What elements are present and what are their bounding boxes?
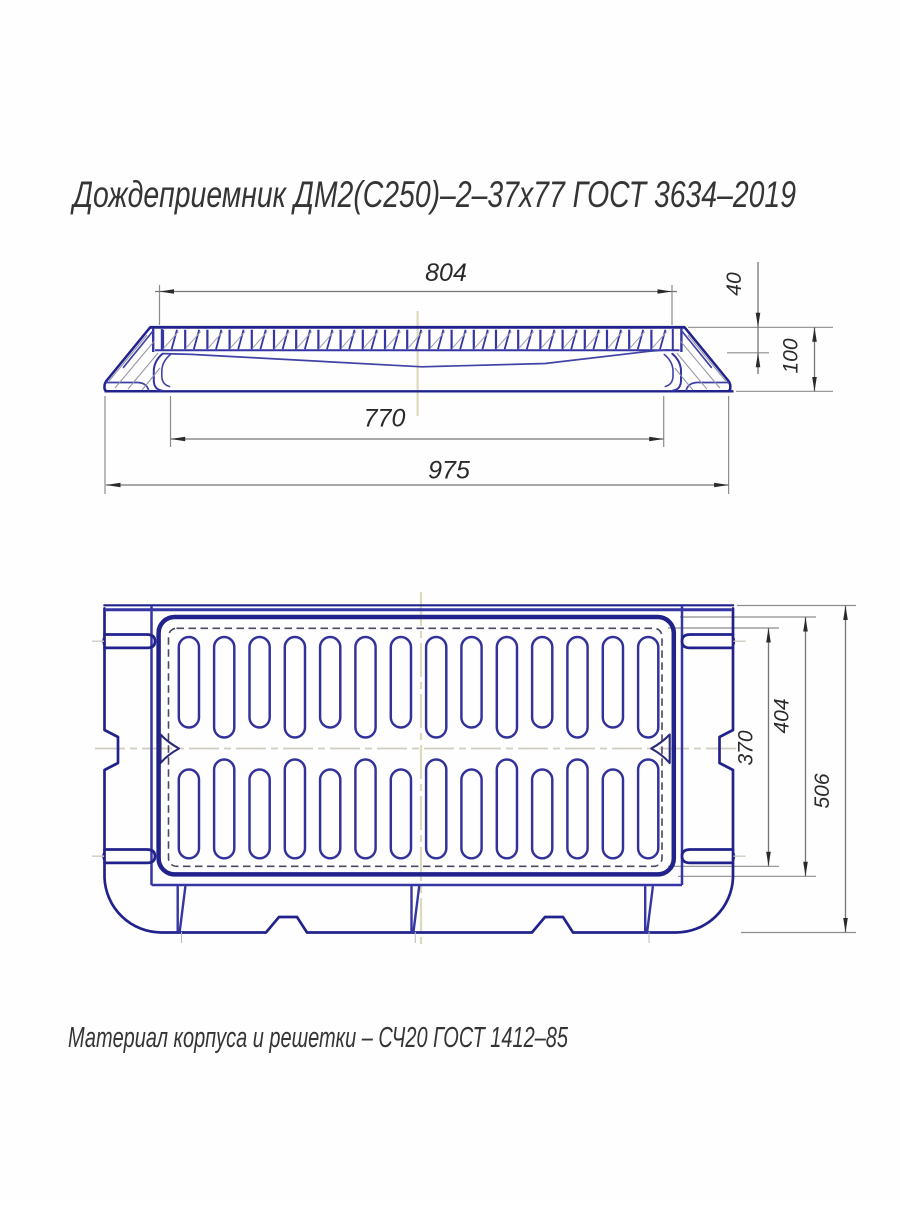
svg-text:370: 370 — [735, 730, 758, 765]
svg-text:Дождеприемник ДМ2(С250)–2–37х7: Дождеприемник ДМ2(С250)–2–37х77 ГОСТ 363… — [70, 174, 796, 215]
svg-text:100: 100 — [780, 338, 803, 373]
svg-text:Материал корпуса и решетки – С: Материал корпуса и решетки – СЧ20 ГОСТ 1… — [68, 1022, 569, 1054]
svg-text:804: 804 — [425, 259, 467, 287]
svg-text:506: 506 — [811, 773, 834, 808]
svg-text:770: 770 — [364, 405, 406, 433]
svg-text:975: 975 — [428, 457, 470, 485]
svg-text:40: 40 — [723, 272, 746, 296]
svg-text:404: 404 — [771, 698, 794, 733]
